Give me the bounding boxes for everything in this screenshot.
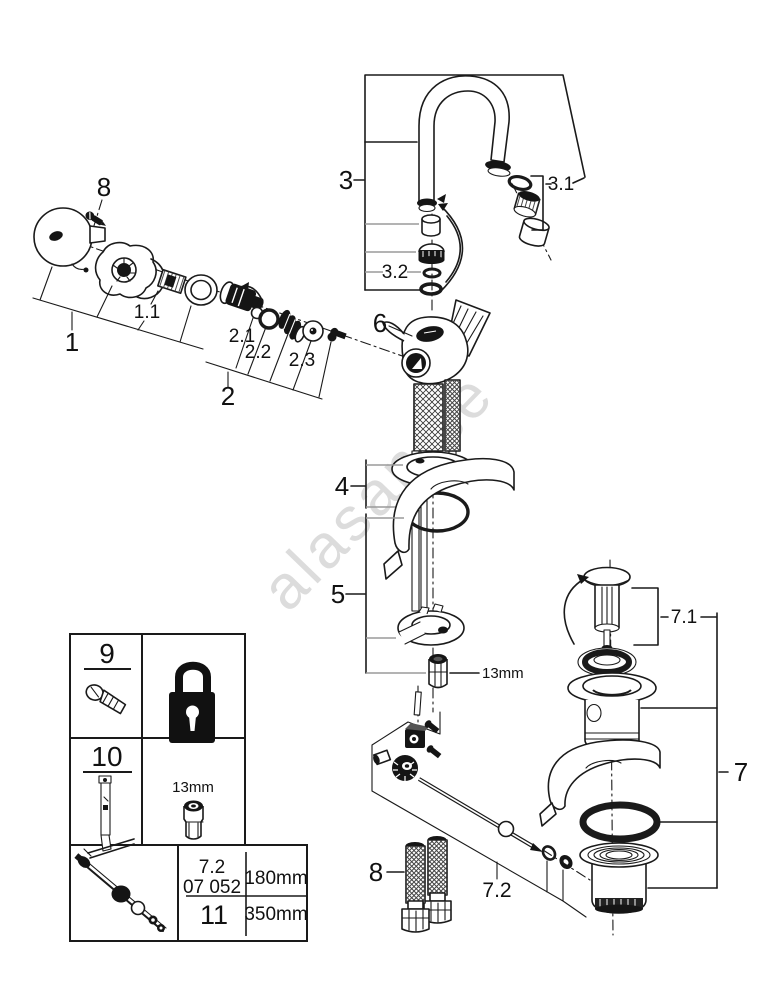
callout-4: 4	[335, 471, 349, 501]
rod-plug	[372, 750, 390, 765]
aerator-shell	[518, 216, 550, 248]
handle-assembly: 8	[33, 172, 428, 411]
nut-size-label: 13mm	[482, 665, 524, 682]
aerator-insert	[513, 189, 541, 219]
table-len-short: 180mm	[244, 868, 307, 889]
adapter-sleeve	[158, 270, 186, 294]
plug-seal	[578, 648, 636, 676]
socket-size-label: 13mm	[172, 779, 214, 796]
mounting-nut	[429, 654, 447, 688]
tools-table: 9 10 13mm	[70, 634, 308, 941]
diagram-canvas: alasan.se 8	[0, 0, 775, 1000]
callout-3: 3	[339, 165, 353, 195]
table-cell-10: 10	[91, 741, 122, 772]
table-cell-11: 11	[200, 900, 228, 930]
table-ref-code: 07 052	[183, 877, 241, 898]
spout-assembly: 3 3.2 3.1	[339, 75, 585, 310]
supply-hoses: 8	[369, 836, 451, 932]
spout-bushing	[422, 215, 440, 236]
drain-assembly: 7.1	[540, 560, 748, 935]
trim-ring	[185, 275, 217, 305]
exploded-parts-diagram: alasan.se 8	[0, 0, 775, 1000]
drain-locknut	[580, 843, 658, 914]
o-ring-3-2	[424, 269, 440, 277]
plug-rotate-arrow	[564, 574, 589, 644]
clevis-screw-bottom	[425, 744, 442, 760]
callout-5: 5	[331, 579, 345, 609]
callout-7: 7	[734, 757, 748, 787]
drain-flange	[568, 673, 656, 751]
hose-left	[402, 842, 429, 932]
drain-o-ring	[583, 805, 657, 839]
callout-2-2: 2.2	[245, 342, 271, 363]
thumb-nut	[392, 755, 418, 781]
callout-6: 6	[373, 308, 387, 338]
callout-7-1: 7.1	[671, 607, 697, 628]
table-cell-9: 9	[99, 638, 115, 669]
spout-nut	[419, 244, 445, 264]
table-ref-part: 7.2	[199, 857, 225, 878]
aerator-o-ring	[508, 175, 532, 192]
callout-2-3: 2.3	[289, 350, 315, 371]
rod-o-ring	[540, 844, 557, 862]
horseshoe-washer	[398, 604, 464, 645]
pivot-pin	[414, 692, 421, 715]
callout-1: 1	[65, 327, 79, 357]
spout-o-ring	[421, 284, 441, 294]
mounting-shank	[414, 384, 443, 451]
faucet-body	[383, 317, 468, 384]
watermark: alasan.se	[248, 359, 507, 624]
clevis-screw-top	[423, 719, 440, 735]
table-grid	[70, 634, 245, 845]
handle-knob	[96, 243, 165, 299]
o-ring-2-2	[260, 310, 278, 328]
callout-7-2: 7.2	[482, 879, 511, 902]
drain-plug	[584, 568, 630, 652]
callout-3-1: 3.1	[548, 174, 574, 195]
callout-8-bottom: 8	[369, 857, 383, 887]
callout-1-1: 1.1	[134, 302, 160, 323]
table-len-long: 350mm	[244, 904, 307, 925]
disc-2-3	[303, 321, 323, 341]
callout-2: 2	[221, 381, 235, 411]
socket-13mm-icon	[184, 801, 203, 840]
callout-8-top: 8	[97, 172, 111, 202]
callout-3-2: 3.2	[382, 262, 408, 283]
spout	[419, 76, 512, 204]
drain-wedge	[540, 740, 660, 826]
